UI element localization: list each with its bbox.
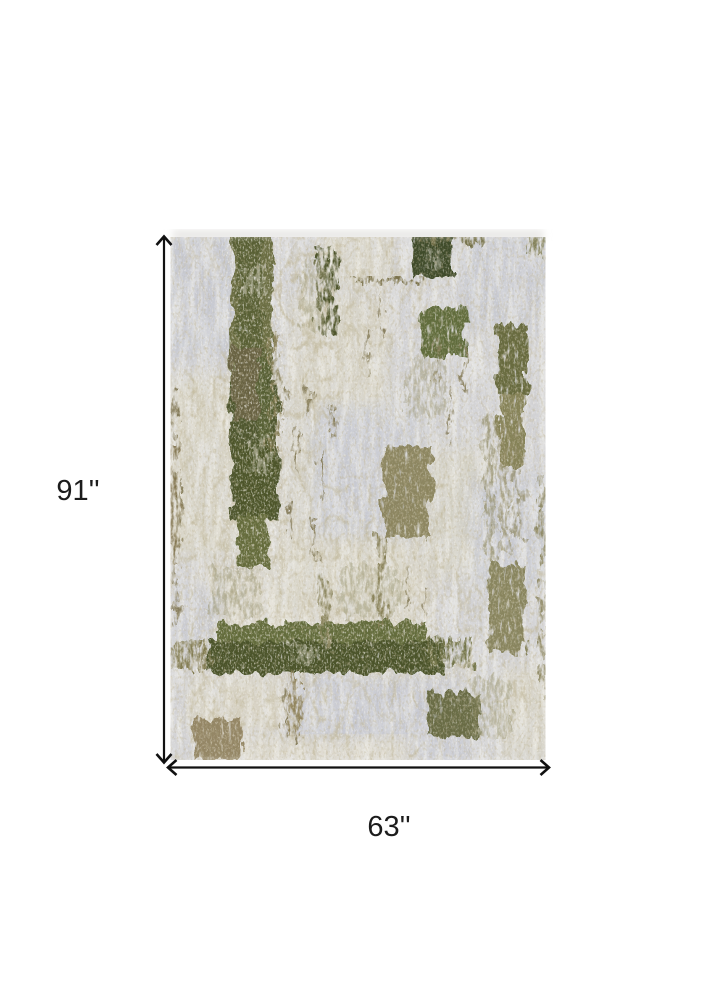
svg-text:63'': 63'' [367,811,410,843]
svg-text:91'': 91'' [56,475,99,507]
